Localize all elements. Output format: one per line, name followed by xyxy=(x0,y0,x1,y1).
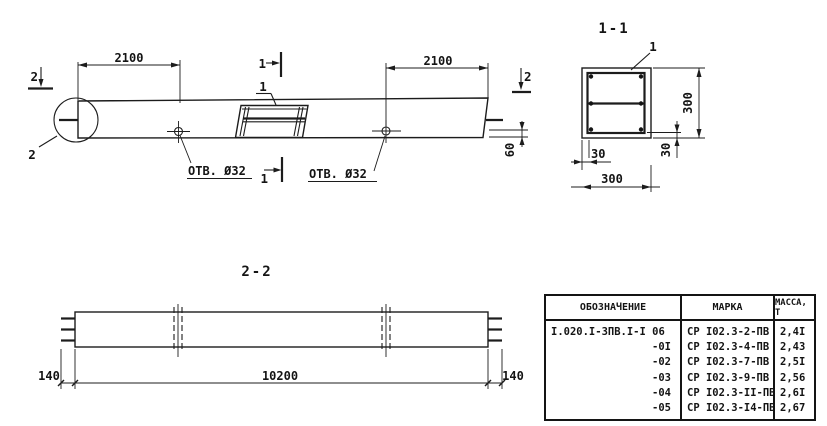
elevation-view: 2 2 2 2100 xyxy=(28,51,532,186)
table-row: 2,56 xyxy=(775,371,814,386)
header-mark: МАРКА xyxy=(680,296,775,319)
hole-left xyxy=(167,121,191,163)
svg-text:300: 300 xyxy=(601,172,623,186)
section-1-1-view: 1-1 1 300 30 xyxy=(571,21,705,192)
table-row: СР I02.3-II-ПВ xyxy=(682,386,773,401)
cage-leader: 1 xyxy=(631,39,657,70)
dim-10200: 10200 xyxy=(262,369,298,383)
section-1-1-title: 1-1 xyxy=(598,21,629,37)
table-row: 2,67 xyxy=(775,401,814,416)
col-mass: 2,4I 2,43 2,5I 2,56 2,6I 2,67 xyxy=(775,321,814,419)
table-row: -05 xyxy=(546,401,680,416)
svg-text:2100: 2100 xyxy=(424,54,453,68)
svg-text:ОТВ. Ø32: ОТВ. Ø32 xyxy=(188,164,246,178)
col-designation: I.020.I-3ПВ.I-I 06 -0I -02 -03 -04 -05 xyxy=(546,321,680,419)
svg-text:1: 1 xyxy=(258,56,266,71)
dim-300-width: 300 xyxy=(571,165,660,192)
table-row: -03 xyxy=(546,371,680,386)
table-row: 2,5I xyxy=(775,355,814,370)
hole-right xyxy=(372,120,401,171)
dim-60: 60 xyxy=(489,121,528,157)
spec-table: ОБОЗНАЧЕНИЕ МАРКА МАССА, Т I.020.I-3ПВ.I… xyxy=(544,294,816,421)
dim-300-height: 300 xyxy=(653,68,705,138)
dim-30-side: 30 xyxy=(647,121,681,158)
hole-note-right: ОТВ. Ø32 xyxy=(308,167,377,182)
table-row: -02 xyxy=(546,355,680,370)
header-mass: МАССА, Т xyxy=(775,296,814,319)
svg-text:30: 30 xyxy=(591,147,605,161)
rebar-protrusions xyxy=(61,319,502,341)
dim-140-right: 140 xyxy=(502,369,524,383)
svg-text:2: 2 xyxy=(30,69,38,84)
table-row: СР I02.3-2-ПВ xyxy=(682,325,773,340)
table-row: I.020.I-3ПВ.I-I 06 xyxy=(546,325,680,340)
svg-text:60: 60 xyxy=(503,143,517,157)
section1-marker-bottom: 1 xyxy=(260,157,282,186)
detail-leader-line xyxy=(39,136,57,147)
svg-text:1: 1 xyxy=(260,171,268,186)
svg-text:2100: 2100 xyxy=(115,51,144,65)
spec-table-header: ОБОЗНАЧЕНИЕ МАРКА МАССА, Т xyxy=(546,296,814,321)
section1-marker-top: 1 xyxy=(258,52,281,77)
table-row: 2,43 xyxy=(775,340,814,355)
svg-text:1: 1 xyxy=(649,39,657,54)
table-row: 2,6I xyxy=(775,386,814,401)
recess-detail xyxy=(236,106,309,138)
section2-marker-right: 2 xyxy=(512,68,532,92)
section-2-2-title: 2-2 xyxy=(241,264,272,280)
dim-30-bottom: 30 xyxy=(571,140,611,170)
svg-text:1: 1 xyxy=(259,79,267,94)
col-mark: СР I02.3-2-ПВ СР I02.3-4-ПВ СР I02.3-7-П… xyxy=(680,321,775,419)
drawing-sheet: 2 2 2 2100 xyxy=(0,0,827,426)
dim-2100-right: 2100 xyxy=(386,54,488,126)
hole-note-left: ОТВ. Ø32 xyxy=(187,164,252,179)
section-2-2-view: 2-2 140 xyxy=(38,264,524,389)
dim-140-left: 140 xyxy=(38,369,60,383)
table-row: -0I xyxy=(546,340,680,355)
section2-marker-left: 2 xyxy=(28,67,53,89)
svg-text:300: 300 xyxy=(681,92,695,114)
beam-plan-outline xyxy=(75,312,488,347)
header-designation: ОБОЗНАЧЕНИЕ xyxy=(546,296,680,319)
table-row: СР I02.3-7-ПВ xyxy=(682,355,773,370)
table-row: СР I02.3-9-ПВ xyxy=(682,371,773,386)
table-row: 2,4I xyxy=(775,325,814,340)
svg-text:30: 30 xyxy=(659,143,673,157)
recess-leader: 1 xyxy=(256,79,276,105)
dim-chain-bottom: 140 10200 140 xyxy=(38,349,524,389)
dim-2100-left: 2100 xyxy=(78,51,180,103)
svg-text:2: 2 xyxy=(524,69,532,84)
table-row: СР I02.3-I4-ПВ xyxy=(682,401,773,416)
table-row: -04 xyxy=(546,386,680,401)
detail-leader-label: 2 xyxy=(28,147,36,162)
table-row: СР I02.3-4-ПВ xyxy=(682,340,773,355)
spec-table-body: I.020.I-3ПВ.I-I 06 -0I -02 -03 -04 -05 С… xyxy=(546,321,814,419)
svg-text:ОТВ. Ø32: ОТВ. Ø32 xyxy=(309,167,367,181)
